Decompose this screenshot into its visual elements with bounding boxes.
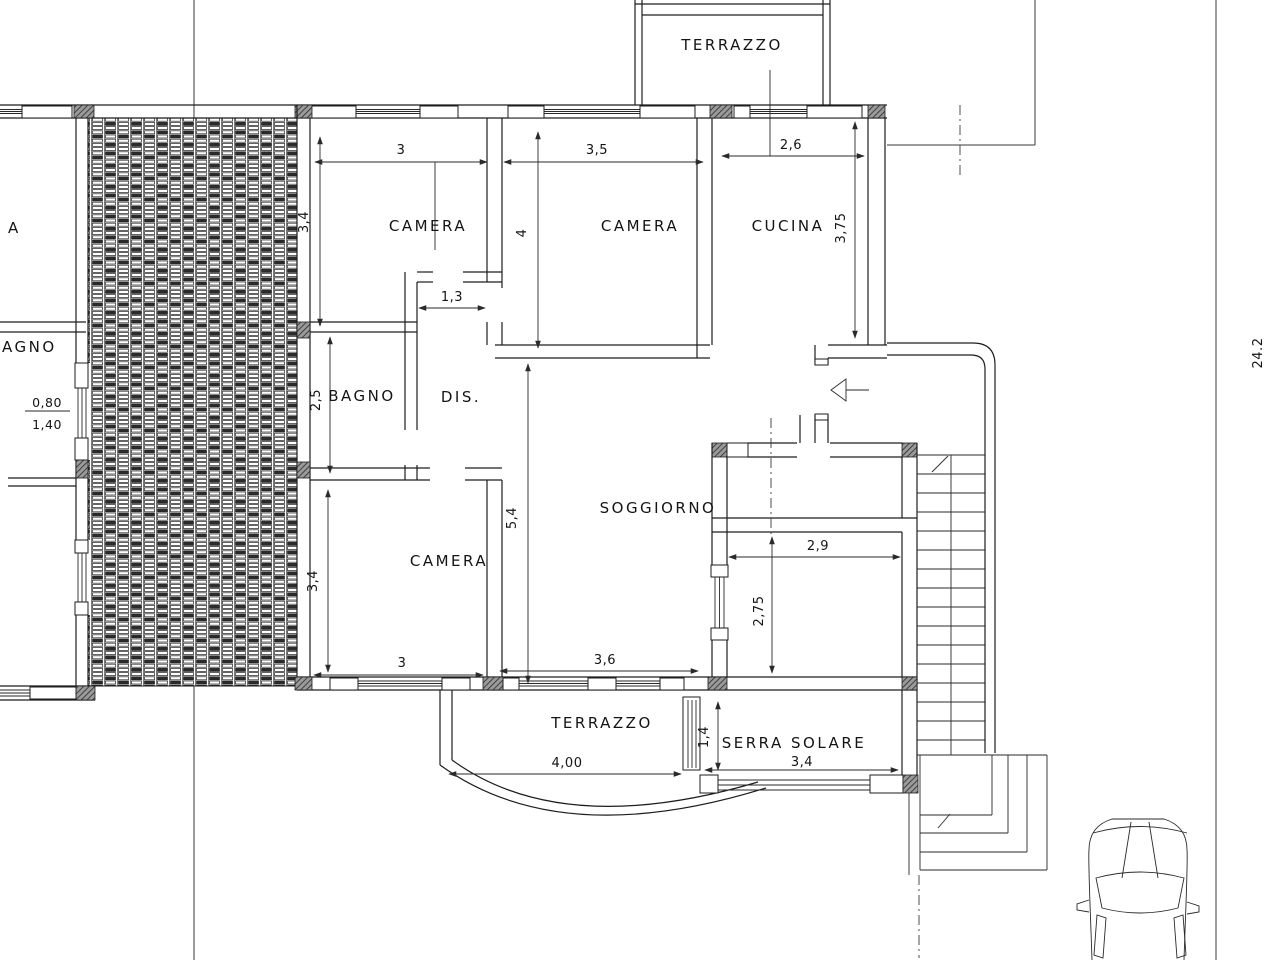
- room-label-camera3: CAMERA: [410, 552, 488, 570]
- dim-serra-depth: 1,4: [697, 726, 712, 748]
- dim-site-length: 24.2: [1251, 338, 1266, 369]
- room-label-bagno: BAGNO: [328, 387, 395, 405]
- room-label-neighbor-a: A: [8, 219, 21, 237]
- dim-cucina-height: 3,75: [834, 213, 849, 244]
- room-label-terrace-top: TERRAZZO: [680, 36, 783, 54]
- dim-camera1-width: 3: [397, 143, 406, 158]
- dim-window-height: 1,40: [32, 417, 62, 432]
- room-label-camera2: CAMERA: [601, 217, 679, 235]
- dim-camera3-width: 3: [398, 656, 407, 671]
- dim-camera3-height: 3,4: [306, 570, 321, 592]
- dim-soggiorno-width: 3,6: [594, 653, 616, 668]
- terrace-top-walls: [635, 0, 830, 156]
- floor-plan-page: TERRAZZO CAMERA CAMERA CUCINA BAGNO DIS.…: [0, 0, 1280, 960]
- room-label-camera1: CAMERA: [389, 217, 467, 235]
- room-label-soggiorno: SOGGIORNO: [600, 499, 717, 517]
- room-label-neighbor-bagno: AGNO: [2, 338, 57, 356]
- dim-bagno-height: 2,5: [309, 389, 324, 411]
- room-label-serra-solare: SERRA SOLARE: [722, 734, 866, 752]
- dim-nook-width: 2,9: [807, 539, 829, 554]
- dim-terrace-width: 4,00: [552, 756, 583, 771]
- dim-soggiorno-height: 5,4: [505, 507, 520, 529]
- north-wall: [0, 105, 887, 118]
- roof-tile-hatch: [88, 118, 297, 686]
- dim-camera1-height: 3,4: [297, 211, 312, 233]
- car-top-view: [1077, 819, 1199, 960]
- dim-camera2-height: 4: [515, 229, 530, 238]
- room-label-terrace-bottom: TERRAZZO: [550, 714, 653, 732]
- outdoor-steps: [909, 755, 1047, 958]
- terrace-bottom-walls: [440, 690, 766, 815]
- room-label-dis: DIS.: [441, 388, 481, 406]
- dim-window-sill: 0,80: [32, 395, 62, 410]
- dim-dis-width: 1,3: [441, 290, 463, 305]
- south-wall: [295, 677, 917, 690]
- entrance-arrow: [831, 379, 869, 401]
- dim-serra-width: 3,4: [791, 755, 813, 770]
- staircase: [902, 455, 985, 755]
- floor-plan-drawing: TERRAZZO CAMERA CAMERA CUCINA BAGNO DIS.…: [0, 0, 1280, 960]
- dim-camera2-width: 3,5: [586, 143, 608, 158]
- dim-nook-height: 2,75: [752, 596, 767, 627]
- dim-cucina-width: 2,6: [780, 138, 802, 153]
- room-label-cucina: CUCINA: [752, 217, 825, 235]
